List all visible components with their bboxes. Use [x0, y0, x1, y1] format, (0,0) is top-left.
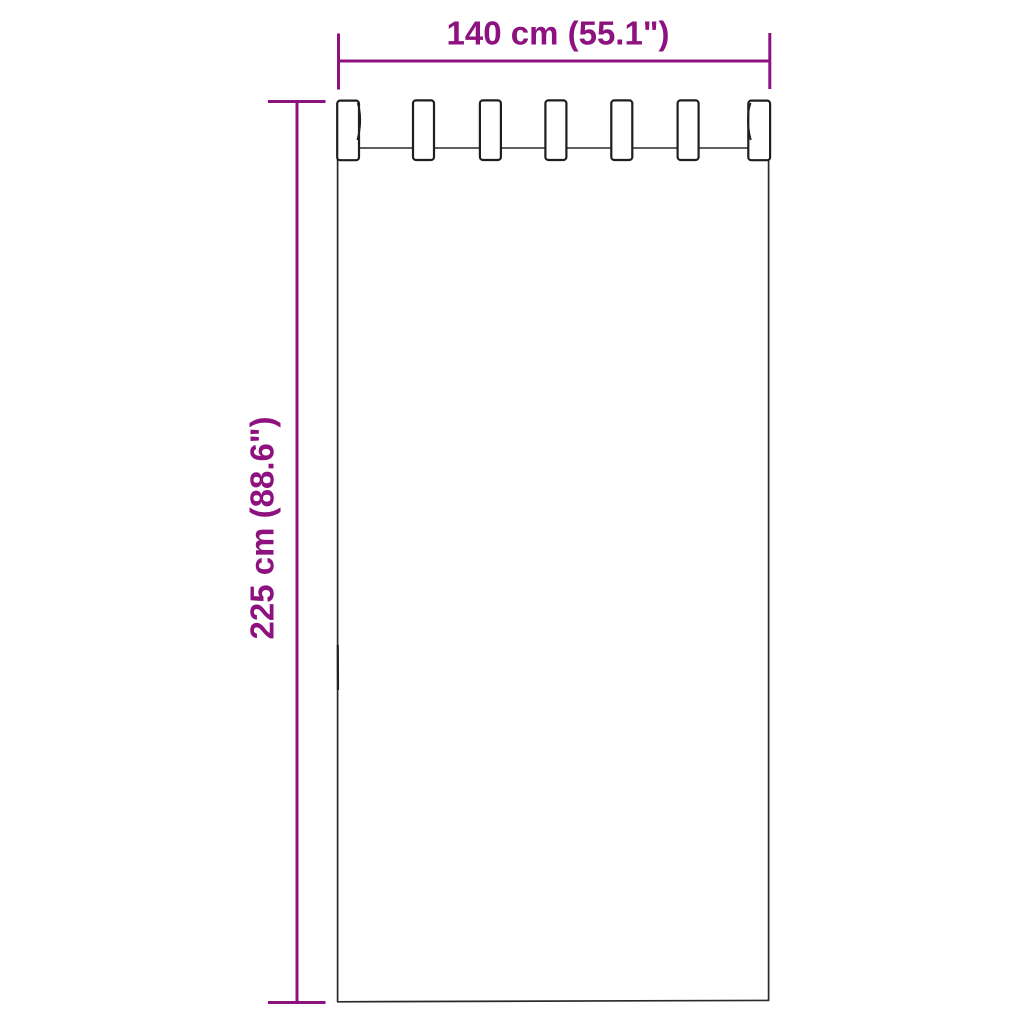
- svg-text:225 cm (88.6"): 225 cm (88.6"): [244, 417, 281, 640]
- svg-text:140 cm (55.1"): 140 cm (55.1"): [447, 15, 670, 52]
